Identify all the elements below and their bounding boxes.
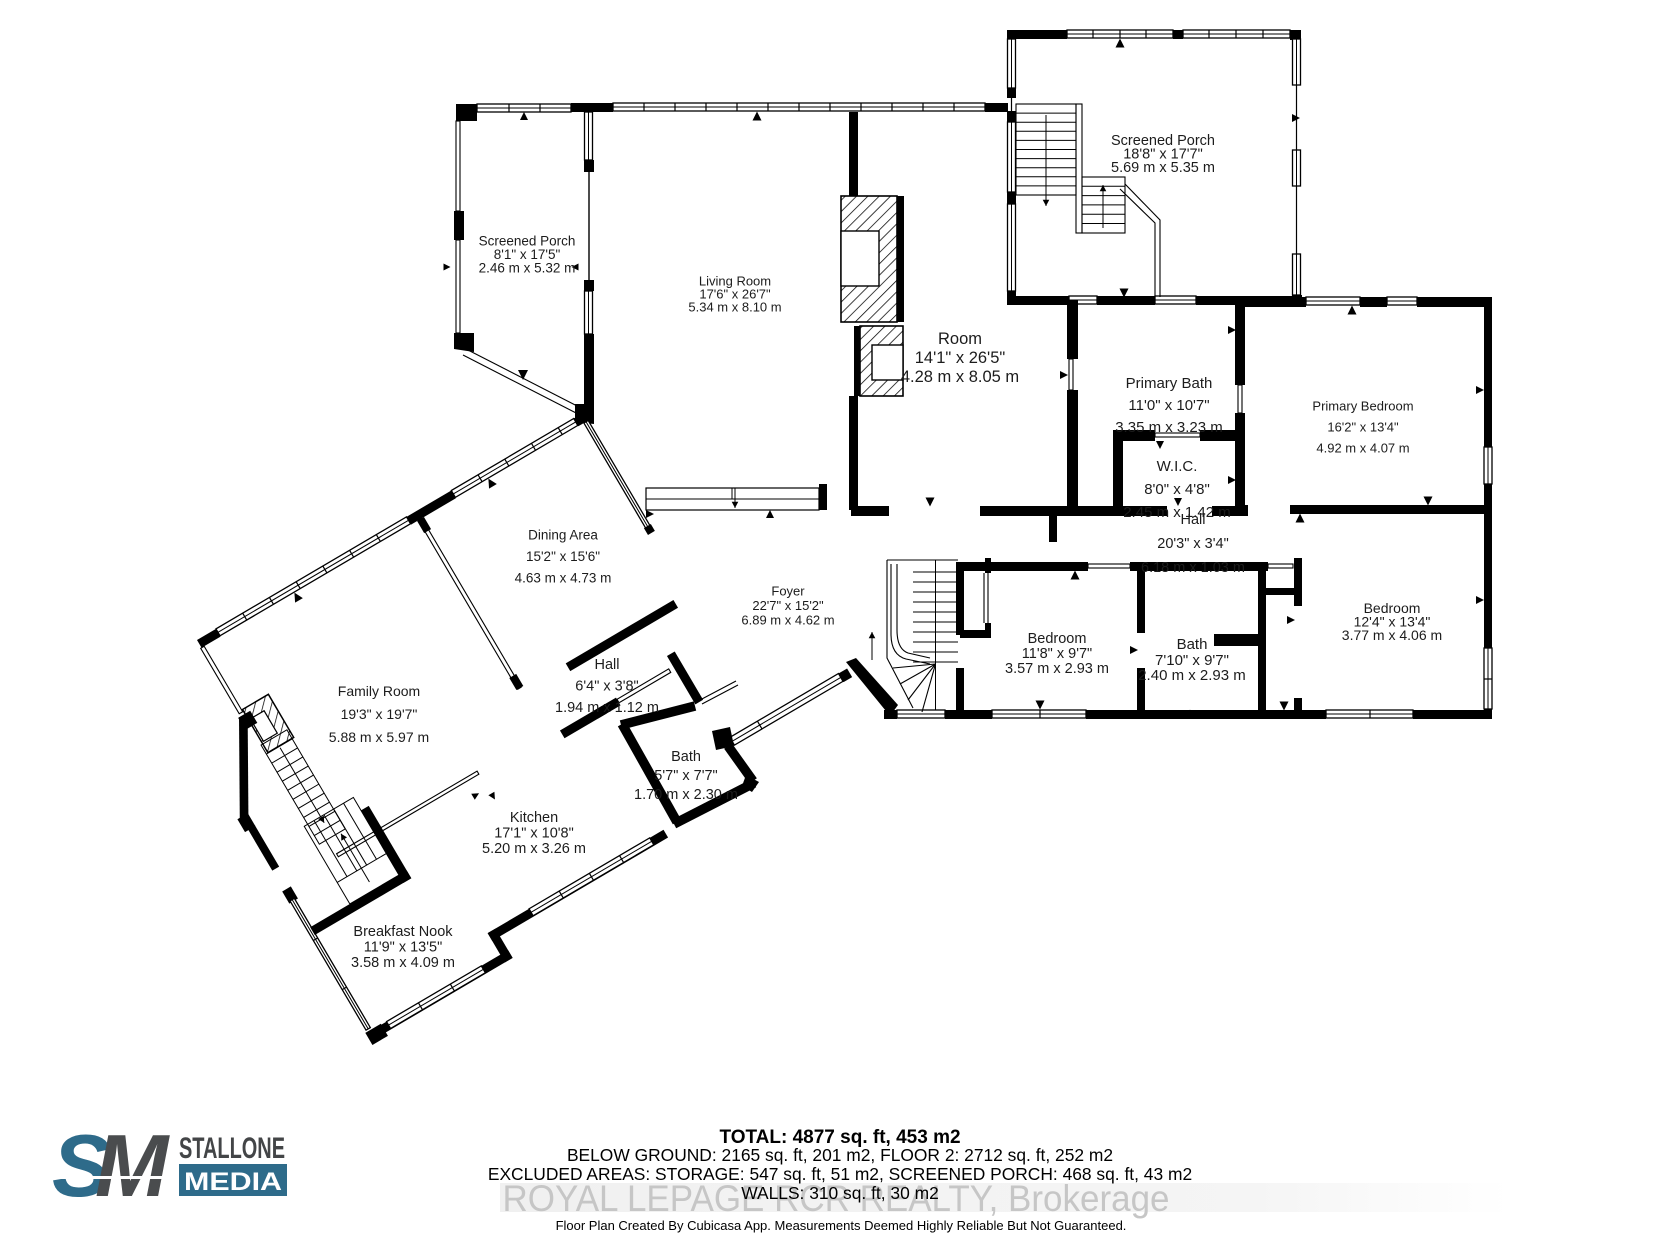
svg-text:4.63 m x 4.73 m: 4.63 m x 4.73 m [515,571,612,586]
svg-text:2.46 m x 5.32 m: 2.46 m x 5.32 m [479,261,576,276]
svg-text:14'1" x 26'5": 14'1" x 26'5" [915,349,1006,367]
svg-text:W.I.C.: W.I.C. [1157,458,1198,475]
svg-text:Dining Area: Dining Area [528,528,598,543]
svg-text:EXCLUDED AREAS: STORAGE: 547 s: EXCLUDED AREAS: STORAGE: 547 sq. ft, 51 … [488,1164,1192,1184]
svg-text:8'0" x 4'8": 8'0" x 4'8" [1144,481,1210,498]
svg-text:5.69 m x 5.35 m: 5.69 m x 5.35 m [1111,160,1215,176]
svg-text:15'2" x 15'6": 15'2" x 15'6" [526,549,600,564]
svg-text:19'3" x 19'7": 19'3" x 19'7" [341,706,418,722]
svg-text:11'8" x 9'7": 11'8" x 9'7" [1022,646,1092,662]
svg-text:Floor Plan Created By Cubicasa: Floor Plan Created By Cubicasa App. Meas… [556,1218,1127,1233]
svg-text:BELOW GROUND: 2165 sq. ft, 201: BELOW GROUND: 2165 sq. ft, 201 m2, FLOOR… [567,1145,1113,1165]
svg-text:6.89 m x 4.62 m: 6.89 m x 4.62 m [741,613,834,628]
svg-text:5.20 m x 3.26 m: 5.20 m x 3.26 m [482,841,586,857]
svg-text:Bath: Bath [1177,636,1208,653]
svg-text:M: M [95,1116,170,1215]
svg-text:Foyer: Foyer [771,584,805,599]
svg-text:11'0" x 10'7": 11'0" x 10'7" [1128,397,1209,414]
svg-text:Kitchen: Kitchen [510,810,558,826]
svg-text:Hall: Hall [1181,512,1206,528]
svg-text:3.35 m x 3.23 m: 3.35 m x 3.23 m [1115,419,1223,436]
svg-text:6'4" x 3'8": 6'4" x 3'8" [575,679,638,695]
svg-text:Bedroom: Bedroom [1028,631,1087,647]
svg-text:5'7" x 7'7": 5'7" x 7'7" [654,768,717,784]
svg-text:Hall: Hall [595,657,620,673]
svg-text:3.77 m x 4.06 m: 3.77 m x 4.06 m [1342,627,1442,643]
svg-text:WALLS: 310 sq. ft, 30 m2: WALLS: 310 sq. ft, 30 m2 [741,1183,939,1203]
svg-text:11'9" x 13'5": 11'9" x 13'5" [364,940,442,956]
svg-text:20'3" x 3'4": 20'3" x 3'4" [1157,536,1228,552]
svg-text:1.94 m x 1.12 m: 1.94 m x 1.12 m [555,700,659,716]
svg-text:Breakfast Nook: Breakfast Nook [353,924,453,940]
svg-text:1.70 m x 2.30 m: 1.70 m x 2.30 m [634,787,738,803]
svg-text:22'7" x 15'2": 22'7" x 15'2" [752,598,824,613]
svg-text:2.45 m x 1.42 m: 2.45 m x 1.42 m [1123,504,1231,521]
svg-text:Room: Room [938,330,982,348]
svg-text:6.18 m x 1.03 m: 6.18 m x 1.03 m [1141,560,1245,576]
svg-text:5.34 m x 8.10 m: 5.34 m x 8.10 m [688,300,781,315]
svg-text:STALLONE: STALLONE [179,1132,285,1165]
svg-text:Primary Bedroom: Primary Bedroom [1312,399,1413,414]
svg-text:3.57 m x 2.93 m: 3.57 m x 2.93 m [1005,661,1109,677]
svg-text:MEDIA: MEDIA [184,1168,282,1196]
svg-text:2.40 m x 2.93 m: 2.40 m x 2.93 m [1138,667,1246,684]
svg-text:16'2" x 13'4": 16'2" x 13'4" [1327,420,1399,435]
svg-text:3.58 m x 4.09 m: 3.58 m x 4.09 m [351,955,455,971]
svg-text:17'1" x 10'8": 17'1" x 10'8" [494,826,574,842]
svg-text:Bath: Bath [671,749,701,765]
svg-text:4.92 m x 4.07 m: 4.92 m x 4.07 m [1316,441,1409,456]
svg-text:Primary Bath: Primary Bath [1126,375,1213,392]
svg-text:4.28 m x 8.05 m: 4.28 m x 8.05 m [901,368,1019,386]
svg-text:Family Room: Family Room [338,683,420,699]
svg-text:5.88 m x 5.97 m: 5.88 m x 5.97 m [329,729,429,745]
